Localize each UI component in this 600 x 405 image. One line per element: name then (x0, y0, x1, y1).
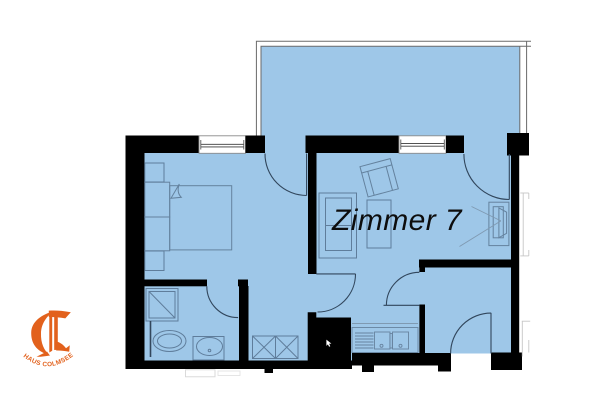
svg-text:Zimmer 7: Zimmer 7 (331, 204, 463, 237)
